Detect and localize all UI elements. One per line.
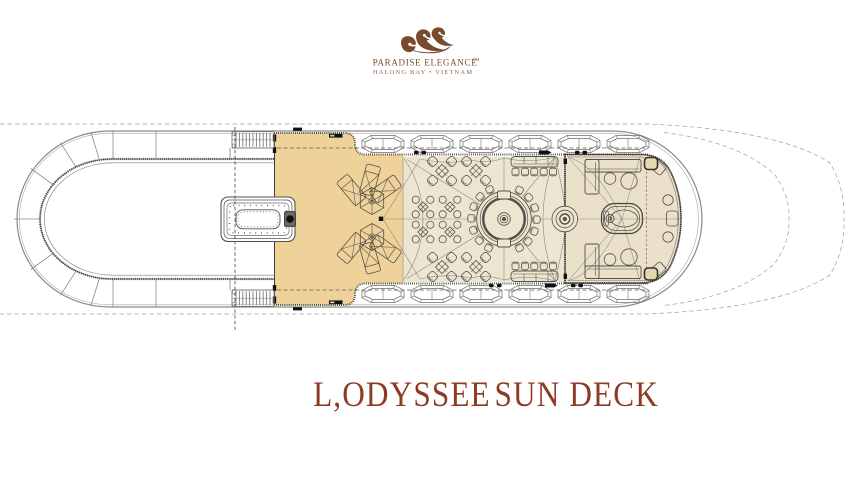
svg-text:PARADISE ELEGANCE: PARADISE ELEGANCE	[373, 57, 478, 67]
svg-text:TM: TM	[473, 57, 480, 62]
svg-text:HALONG BAY • VIETNAM: HALONG BAY • VIETNAM	[373, 69, 473, 76]
